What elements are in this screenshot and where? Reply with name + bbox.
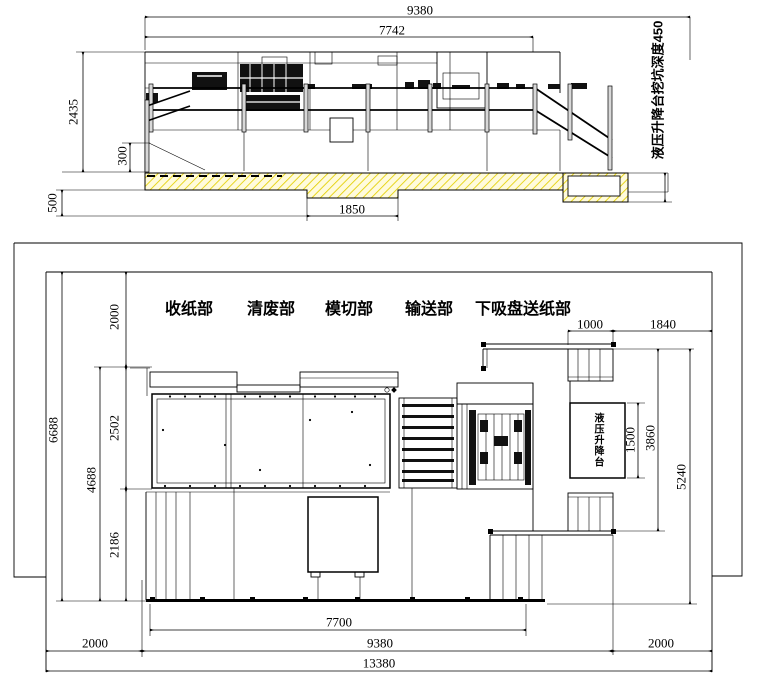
die-cart <box>308 497 378 572</box>
pit-depth-note: 液压升降台挖坑深度450 <box>652 21 665 160</box>
machine-layout-drawing: 9380 7742 2435 300 500 1850 液压升降台挖坑深度450… <box>0 0 757 680</box>
section-label-stripping: 清废部 <box>247 302 295 318</box>
section-label-conveyor: 输送部 <box>405 302 453 318</box>
dim-layout-length: 9380 <box>367 637 393 650</box>
plan-walls <box>14 243 742 672</box>
dim-base-height: 300 <box>116 146 129 166</box>
plan-feeder-section <box>457 383 533 531</box>
feeder-tower <box>437 52 487 108</box>
dim-pit-width: 1850 <box>339 203 365 216</box>
elevation-machine-outline <box>145 52 560 172</box>
dim-total-width: 9380 <box>407 4 433 17</box>
dim-platform-zone: 3860 <box>644 425 657 451</box>
section-label-diecut: 模切部 <box>325 302 373 318</box>
elevation-view <box>56 17 690 221</box>
dim-left-clearance: 2000 <box>82 637 108 650</box>
plan-dimensions <box>46 272 712 671</box>
dim-lower-depth: 2186 <box>108 532 121 558</box>
section-label-feeder: 下吸盘送纸部 <box>475 302 571 318</box>
plan-view <box>14 243 742 672</box>
section-label-delivery: 收纸部 <box>165 302 213 318</box>
dim-machine-width: 7742 <box>379 24 405 37</box>
plan-machine-top-row <box>130 368 533 404</box>
technical-drawing-canvas <box>0 0 757 680</box>
plan-machine-body <box>152 387 397 488</box>
dim-upper-depth: 2502 <box>108 415 121 441</box>
dim-total-length: 13380 <box>363 657 396 670</box>
dim-top-left: 2000 <box>108 304 121 330</box>
dim-right-depth: 5240 <box>675 464 688 490</box>
lower-ladder <box>568 493 613 531</box>
dim-right-clearance: 2000 <box>648 637 674 650</box>
dim-inner-depth: 4688 <box>85 467 98 493</box>
dim-total-depth: 6688 <box>47 417 60 443</box>
plan-conveyor-section <box>399 398 457 488</box>
dim-foundation-depth: 500 <box>46 193 59 213</box>
lift-pit-cavity <box>568 176 620 196</box>
dim-machine-height: 2435 <box>67 99 80 125</box>
dim-stair-width: 1000 <box>577 318 603 331</box>
plan-platform-stairs <box>481 342 625 600</box>
dim-right-gap: 1840 <box>650 318 676 331</box>
base-door <box>330 118 353 142</box>
dim-platform-length: 1500 <box>624 427 637 453</box>
platform-label: 液压升降台 <box>592 413 602 468</box>
dim-machine-length: 7700 <box>326 616 352 629</box>
plan-machine-lower-row <box>146 488 545 602</box>
bolt-dots <box>162 395 376 487</box>
elevation-railing <box>145 84 612 172</box>
upper-ladder <box>568 349 613 381</box>
